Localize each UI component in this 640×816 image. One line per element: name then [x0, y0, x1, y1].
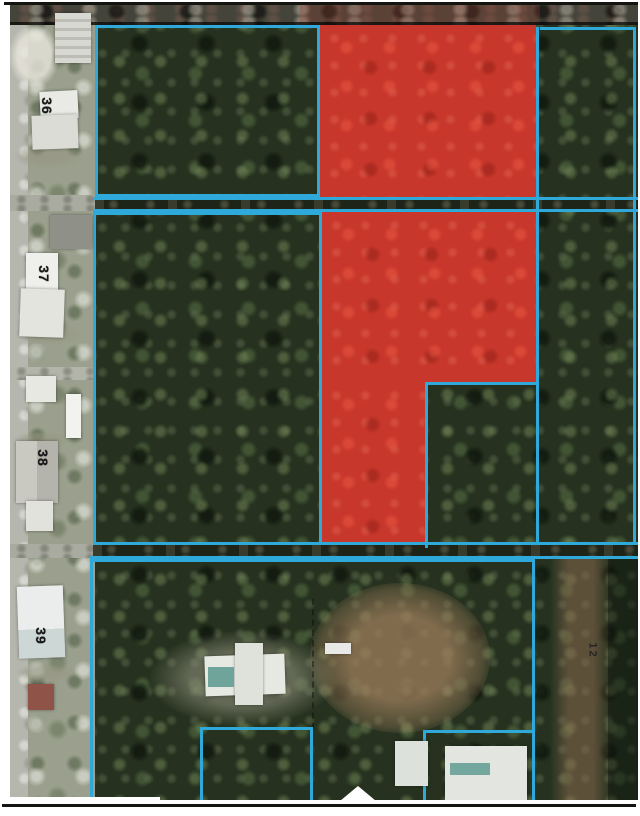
firebreak-band-1: [95, 200, 638, 209]
parcel-line-topright-top: [540, 27, 635, 30]
parcel-line-band2-top: [93, 542, 638, 545]
scanned-map-page: 36 37 38 39 12: [0, 0, 640, 816]
lot-label-37: 37: [37, 265, 51, 283]
house-roof-37b: [19, 288, 65, 338]
teal-roof-section-b: [450, 763, 490, 775]
house-roof-39: [17, 585, 65, 659]
house-roof-bottom-b: [395, 741, 428, 786]
lot-label-38: 38: [36, 449, 50, 467]
parked-vehicles: [325, 643, 351, 654]
cross-road-1: [10, 195, 95, 211]
highlighted-parcel-south-leg[interactable]: [322, 382, 425, 545]
parcel-line-notch-left: [425, 382, 428, 548]
lot-label-39: 39: [34, 627, 48, 645]
highlighted-parcel-south-main[interactable]: [322, 212, 536, 382]
sandy-driveway: [10, 25, 58, 87]
parcel-line-red-right: [536, 27, 539, 545]
parcel-boundary-middleleft[interactable]: [93, 212, 322, 545]
house-roof-bottom-wing: [235, 643, 263, 705]
driveway-patch: [16, 663, 76, 683]
house-roof-barn: [55, 13, 91, 63]
tree-row: [608, 559, 638, 800]
dirt-trail: [550, 559, 612, 800]
house-roof-36b: [31, 114, 78, 150]
scan-bottom-gap: [10, 797, 160, 800]
parcel-line-band1-top: [93, 197, 638, 200]
teal-roof-section: [208, 667, 234, 687]
red-roof-structure: [28, 684, 54, 710]
house-roof-gray: [50, 215, 92, 249]
house-roof-shed: [26, 376, 56, 402]
cross-road-3: [10, 544, 95, 558]
parcel-line-east-edge: [633, 27, 636, 545]
scan-line-top: [4, 2, 638, 5]
lot-label-36: 36: [40, 97, 54, 115]
scan-line-bottom: [2, 804, 636, 807]
aerial-map[interactable]: 36 37 38 39 12: [10, 3, 638, 800]
parcel-line-notch-top: [425, 382, 539, 385]
firebreak-band-2: [93, 545, 638, 556]
highlighted-parcel-north[interactable]: [320, 25, 536, 197]
house-roof-38b: [26, 501, 53, 531]
rv-trailer: [66, 394, 81, 438]
sub-parcel-boundary-left[interactable]: [200, 727, 313, 800]
trail-label-12: 12: [587, 642, 598, 658]
parcel-boundary-topleft[interactable]: [95, 25, 320, 197]
